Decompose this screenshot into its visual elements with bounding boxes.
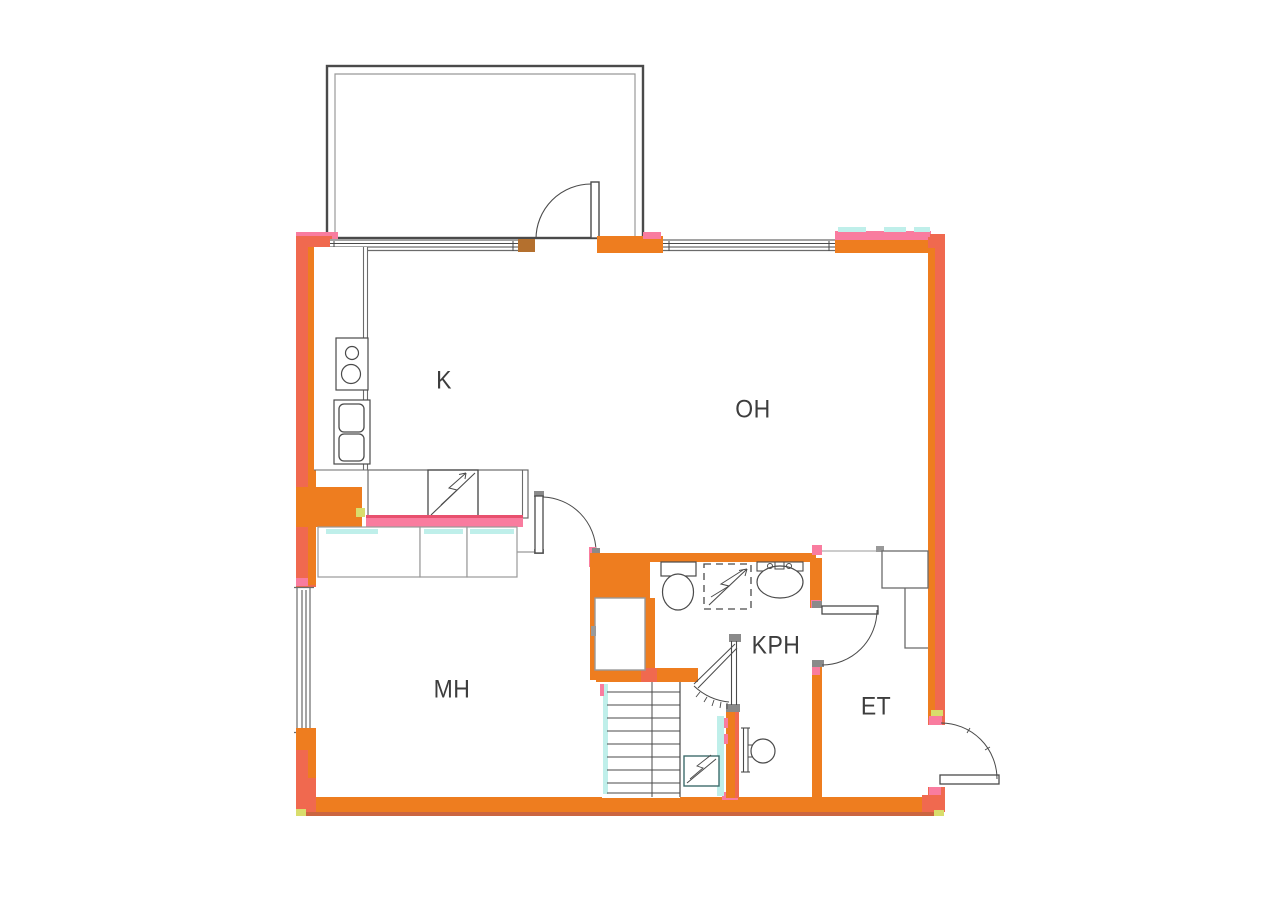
- floor-plan-drawing: [0, 0, 1280, 905]
- room-label-entry: ET: [861, 693, 891, 722]
- stairs: [600, 682, 680, 798]
- balcony-door: [536, 182, 599, 239]
- kitchen-counter: [314, 247, 370, 470]
- bedroom-door: [534, 491, 596, 554]
- kitchen-lower-counter: [368, 470, 528, 518]
- bedroom-window: [294, 587, 314, 733]
- entry-closet: [882, 551, 928, 648]
- left-wall: [294, 237, 316, 810]
- top-wall: [296, 227, 945, 253]
- bathroom-sink: [757, 562, 803, 598]
- room-label-bathroom: KPH: [752, 632, 801, 661]
- appliance-reservation: [684, 755, 719, 786]
- room-label-living-room: OH: [735, 396, 770, 425]
- room-label-bedroom: MH: [434, 676, 471, 705]
- toilet: [661, 562, 696, 610]
- floor-plan: K OH MH KPH ET: [0, 0, 1280, 905]
- living-room-window: [663, 239, 835, 252]
- bedroom-wardrobes: [318, 527, 537, 577]
- room-label-kitchen: K: [436, 367, 452, 396]
- hall-closet: [591, 598, 645, 670]
- bathroom-door: [812, 601, 878, 667]
- washing-machine-reservation: [704, 564, 751, 609]
- utility-area: [684, 712, 775, 798]
- right-wall: [928, 237, 945, 812]
- entry-basin: [741, 728, 775, 772]
- kitchen-sink: [334, 400, 370, 464]
- stove: [336, 338, 368, 390]
- shower-door: [694, 634, 741, 712]
- door-jamb: [518, 239, 535, 252]
- entrance-door: [940, 723, 999, 784]
- entry-area: [812, 545, 928, 648]
